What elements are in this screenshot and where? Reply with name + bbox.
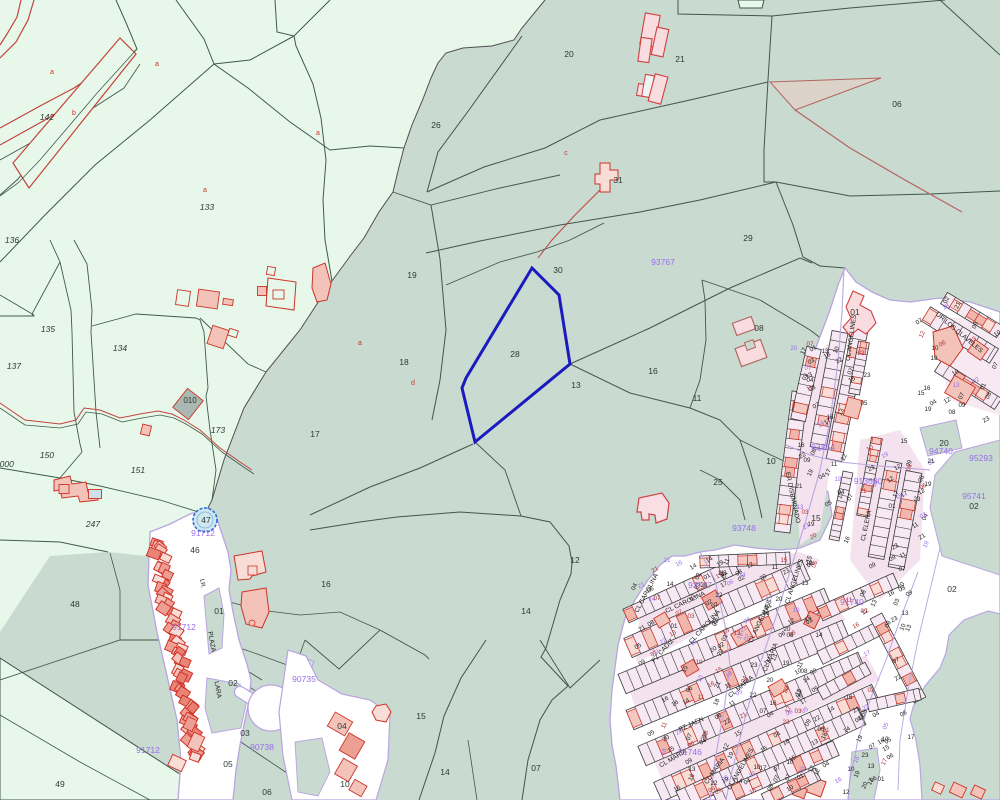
svg-text:12: 12 [843,789,850,796]
svg-text:06: 06 [818,726,825,733]
svg-text:91712: 91712 [136,745,160,755]
svg-text:21: 21 [796,483,803,490]
svg-text:21: 21 [860,488,867,495]
svg-text:010: 010 [183,396,197,405]
svg-text:08: 08 [949,409,956,416]
svg-text:136: 136 [5,235,19,245]
svg-text:20: 20 [784,626,791,633]
svg-text:23: 23 [914,496,921,503]
svg-text:10: 10 [787,759,794,766]
svg-text:03: 03 [868,687,875,694]
svg-text:07: 07 [899,566,906,573]
svg-text:07: 07 [805,365,812,372]
svg-text:a: a [316,130,320,137]
svg-text:08: 08 [754,323,764,333]
svg-text:31: 31 [613,175,623,185]
svg-text:a: a [203,187,207,194]
svg-text:10: 10 [932,345,939,352]
svg-text:93748: 93748 [732,523,756,533]
svg-text:a: a [358,340,362,347]
svg-text:20: 20 [564,49,574,59]
svg-text:03: 03 [688,613,695,620]
svg-text:09: 09 [959,402,966,409]
svg-text:13: 13 [868,763,875,770]
svg-text:a: a [50,69,54,76]
svg-text:13: 13 [571,380,581,390]
svg-text:91746: 91746 [678,747,702,757]
svg-text:a: a [155,61,159,68]
svg-text:b: b [72,110,76,117]
svg-text:17: 17 [908,734,915,741]
svg-text:20: 20 [767,677,774,684]
svg-text:03: 03 [795,708,802,715]
svg-text:22: 22 [858,350,865,357]
svg-text:46: 46 [190,545,200,555]
svg-text:15: 15 [811,513,821,523]
svg-text:26: 26 [431,120,441,130]
svg-text:93767: 93767 [651,257,675,267]
svg-text:19: 19 [783,660,790,667]
svg-text:21: 21 [675,54,685,64]
svg-text:133: 133 [200,202,214,212]
svg-text:137: 137 [7,361,21,371]
svg-text:13: 13 [902,610,909,617]
svg-text:150: 150 [40,450,54,460]
svg-text:21: 21 [928,458,935,465]
svg-text:05: 05 [223,759,233,769]
svg-text:91712: 91712 [172,622,196,632]
svg-text:04: 04 [807,377,814,384]
svg-text:08: 08 [801,668,808,675]
svg-text:02: 02 [947,584,957,594]
svg-text:23: 23 [862,752,869,759]
svg-text:135: 135 [41,324,55,334]
svg-text:21: 21 [664,557,671,564]
svg-text:16: 16 [321,579,331,589]
svg-text:22: 22 [750,692,757,699]
svg-text:30: 30 [553,265,563,275]
svg-text:23: 23 [783,719,790,726]
svg-text:04: 04 [337,721,347,731]
svg-text:02: 02 [228,678,238,688]
svg-text:01: 01 [850,307,860,317]
svg-text:07: 07 [531,763,541,773]
svg-text:23: 23 [864,372,871,379]
svg-text:28: 28 [510,349,520,359]
svg-text:95293: 95293 [969,453,993,463]
svg-text:16: 16 [798,442,805,449]
svg-text:03: 03 [240,728,250,738]
svg-text:29: 29 [743,233,753,243]
svg-text:10: 10 [340,779,350,789]
svg-text:20: 20 [791,345,798,352]
svg-text:20: 20 [776,596,783,603]
svg-text:19: 19 [925,481,932,488]
svg-text:05: 05 [861,400,868,407]
svg-text:142: 142 [40,112,54,122]
svg-text:10: 10 [793,607,800,614]
svg-text:91740: 91740 [840,597,864,607]
svg-text:14: 14 [739,572,746,579]
svg-text:16: 16 [846,694,853,701]
svg-text:19: 19 [931,355,938,362]
svg-text:06: 06 [262,787,272,797]
svg-text:19: 19 [407,270,417,280]
svg-text:01: 01 [214,606,224,616]
svg-text:01: 01 [878,776,885,783]
svg-text:02: 02 [969,501,979,511]
svg-text:49: 49 [55,779,65,789]
svg-text:09: 09 [804,457,811,464]
svg-text:11: 11 [772,564,779,571]
svg-text:25: 25 [713,477,723,487]
svg-text:10: 10 [766,456,776,466]
svg-text:d: d [411,380,415,387]
svg-text:10: 10 [848,766,855,773]
svg-text:11: 11 [831,461,838,468]
svg-text:06: 06 [892,99,902,109]
svg-text:13: 13 [689,766,696,773]
svg-text:95741: 95741 [962,491,986,501]
svg-text:16: 16 [924,385,931,392]
svg-text:c: c [564,150,568,157]
svg-text:93747: 93747 [688,580,712,590]
svg-text:18: 18 [399,357,409,367]
svg-text:91712: 91712 [191,528,215,538]
svg-text:134: 134 [113,343,127,353]
svg-text:07: 07 [654,595,661,602]
svg-text:151: 151 [131,465,145,475]
svg-text:11: 11 [693,393,702,403]
svg-text:01: 01 [671,623,678,630]
svg-text:16: 16 [648,366,658,376]
svg-text:90738: 90738 [250,742,274,752]
svg-text:09: 09 [861,608,868,615]
svg-text:11: 11 [698,694,705,701]
svg-text:04: 04 [838,489,845,496]
svg-text:15: 15 [781,557,788,564]
svg-text:10: 10 [754,764,761,771]
svg-text:13: 13 [802,580,809,587]
svg-text:01: 01 [889,503,896,510]
svg-text:16: 16 [770,700,777,707]
svg-text:12: 12 [570,555,580,565]
svg-text:22: 22 [716,592,723,599]
svg-text:00000: 00000 [0,459,14,469]
svg-text:14: 14 [667,581,674,588]
svg-text:90735: 90735 [292,674,316,684]
svg-text:913680: 913680 [854,476,883,486]
svg-text:14: 14 [521,606,531,616]
svg-text:06: 06 [787,632,794,639]
svg-text:94740: 94740 [929,446,953,456]
svg-text:17: 17 [310,429,320,439]
svg-text:14: 14 [816,632,823,639]
svg-text:48: 48 [70,599,80,609]
svg-text:15: 15 [901,438,908,445]
svg-text:15: 15 [416,711,426,721]
svg-text:93754: 93754 [811,442,835,452]
svg-text:247: 247 [85,519,100,529]
svg-text:17: 17 [760,765,767,772]
svg-text:13: 13 [953,382,960,389]
svg-text:173: 173 [211,425,225,435]
svg-text:10: 10 [696,659,703,666]
svg-text:47: 47 [201,515,211,525]
svg-text:14: 14 [440,767,450,777]
svg-text:23: 23 [751,662,758,669]
svg-text:19: 19 [835,476,842,483]
